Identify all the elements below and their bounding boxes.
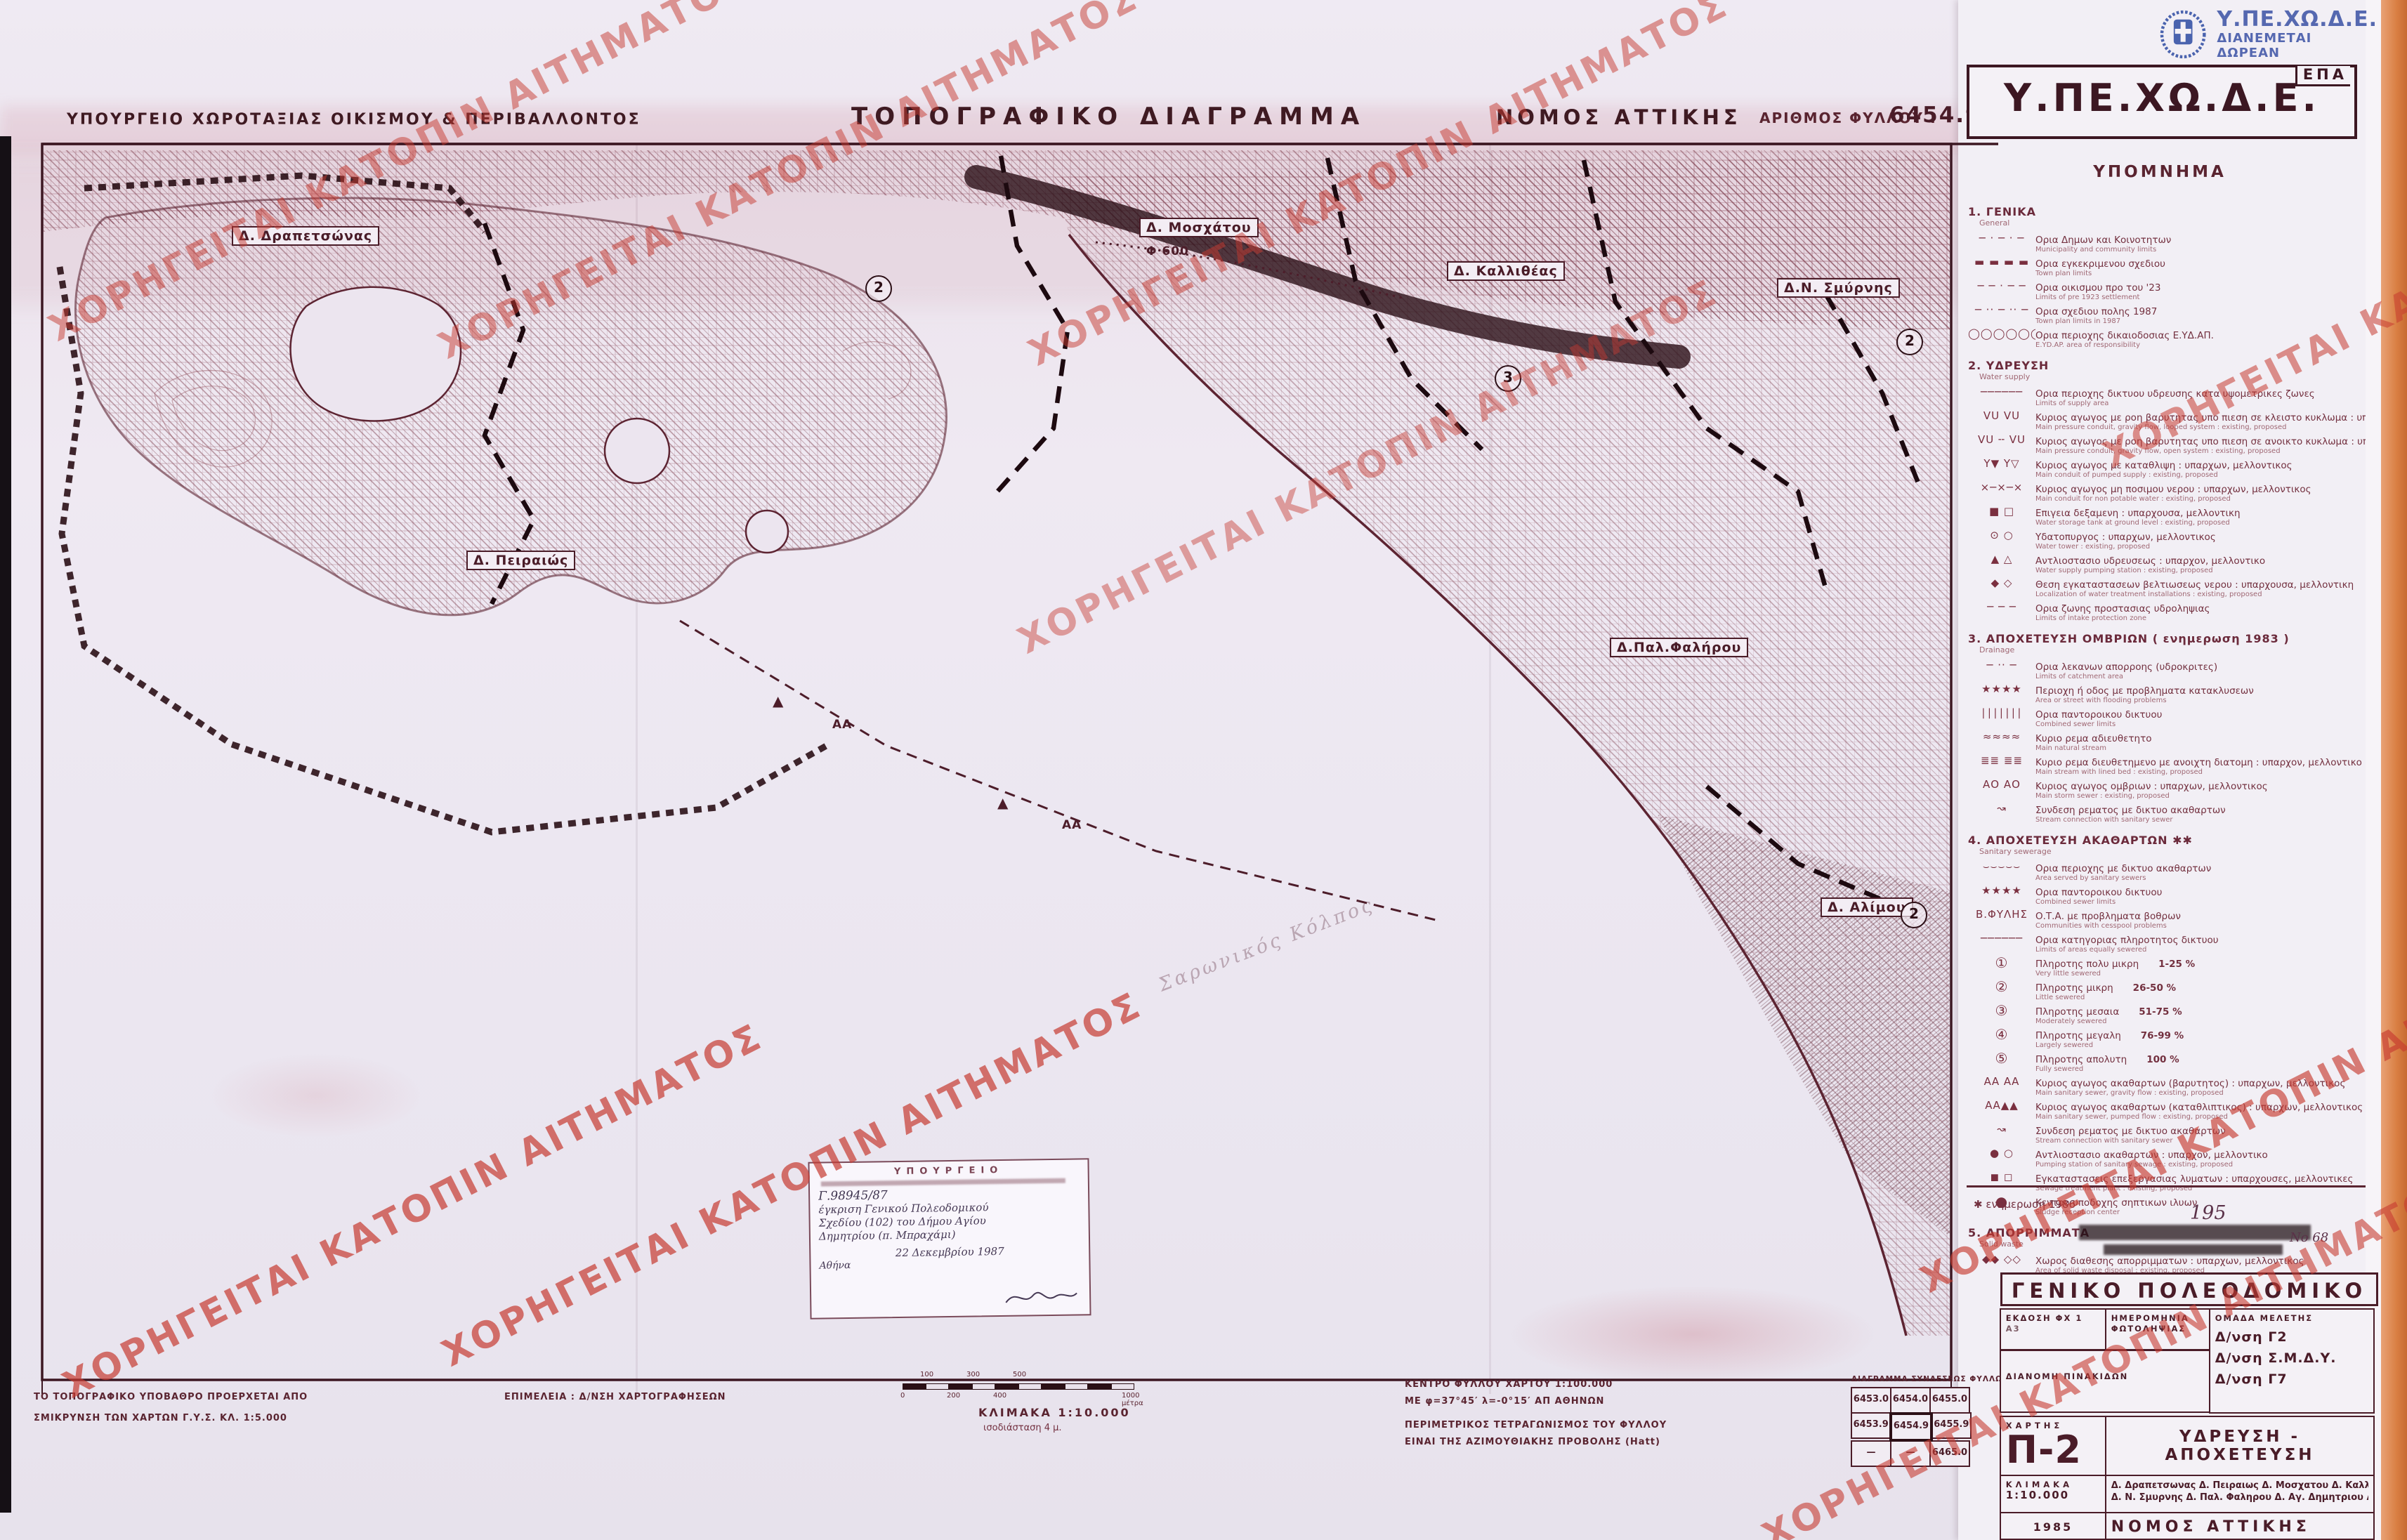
legend-item-text: Ορια οικισμου προ του '23Limits of pre 1… [2035,280,2366,301]
region-name: ΝΟΜΟΣ ΑΤΤΙΚΗΣ [2111,1517,2369,1538]
legend-symbol: ⌣⌣⌣⌣⌣ [1968,861,2035,873]
legend-item-text: Κυριος αγωγος μη ποσιμου νερου : υπαρχων… [2035,482,2366,503]
scale-bar-tick-label: 500 [1013,1371,1026,1378]
legend-item: ④Πληροτης μεγαλη76-99 %Largely sewered [1968,1028,2366,1049]
legend-symbol: ×─×─× [1968,482,2035,494]
sheet-index-title: ΔΙΑΓΡΑΜΜΑ ΣΥΝΔΕΣΕΩΣ ΦΥΛΛΩΝ [1851,1375,1971,1383]
legend-symbol: Β.ΦΥΛΗΣ [1968,909,2035,921]
scale-bar-segment [995,1383,1018,1390]
legend-item-english: Limits of pre 1923 settlement [2035,294,2366,301]
legend-item-english: Stream connection with sanitary sewer [2035,816,2366,824]
legend-item-line: Ορια Δημων και Κοινοτητων [2035,232,2366,246]
sewerage-zone-number: 2 [865,275,892,302]
legend-item-text: Συνδεση ρεματος με δικτυο ακαθαρτωνStrea… [2035,803,2366,824]
legend-symbol: ② [1968,980,2035,993]
municipalities-line: Δ. Δραπετσωνας Δ. Πειραιως Δ. Μοσχατου Δ… [2111,1480,2369,1492]
legend-item-text: Ορια σχεδιου πολης 1987Town plan limits … [2035,304,2366,325]
legend-symbol: ────── [1968,933,2035,945]
legend-item-greek: Ορια παντοροικου δικτυου [2035,709,2162,720]
legend-item-greek: Πληροτης μεγαλη [2035,1030,2121,1041]
legend-symbol: ────── [1968,386,2035,398]
legend-item-english: Little sewered [2035,994,2366,1001]
legend-section-subtitle: Drainage [1979,645,2366,654]
footer-credit: ΕΠΙΜΕΛΕΙΑ : Δ/ΝΣΗ ΧΑΡΤΟΓΡΑΦΗΣΕΩΝ [504,1392,726,1402]
legend-item-value: 51-75 % [2139,1006,2182,1018]
legend-item: ─ ·· ─Ορια λεκανων απορροης (υδροκριτες)… [1968,659,2366,680]
legend-item-greek: Ορια σχεδιου πολης 1987 [2035,306,2157,317]
legend-symbol: ∣∣∣∣∣∣∣ [1968,707,2035,719]
legend-item-greek: Ορια κατηγοριας πληροτητος δικτυου [2035,935,2219,946]
scale-value: 1:10.000 [2006,1490,2101,1501]
legend-item-greek: Συνδεση ρεματος με δικτυο ακαθαρτων [2035,805,2226,816]
legend-title: ΥΠΟΜΝΗΜΑ [1963,163,2356,181]
municipalities-cell: Δ. Δραπετσωνας Δ. Πειραιως Δ. Μοσχατου Δ… [2105,1475,2375,1514]
legend-item-line: Κυριος αγωγος με καταθλιψη : υπαρχων, με… [2035,458,2366,471]
legend-item-text: Ορια Δημων και ΚοινοτητωνMunicipality an… [2035,232,2366,254]
sheet-center-coords: ΜΕ φ=37°45′ λ=-0°15′ ΑΠ ΑΘΗΝΩΝ [1405,1396,1604,1407]
sewerage-zone-number: 2 [1901,902,1927,928]
legend-item-english: Town plan limits in 1987 [2035,317,2366,325]
legend-item-greek: Κυριος αγωγος με ροη βαρυτητας υπο πιεση… [2035,436,2366,447]
legend-item-line: Κυριος αγωγος με ροη βαρυτητας υπο πιεση… [2035,434,2366,447]
legend-section-title: 3. ΑΠΟΧΕΤΕΥΣΗ ΟΜΒΡΙΩΝ ( ενημερωση 1983 ) [1968,632,2366,645]
scale-bar: 10030050002004001000 μέτρα [903,1368,1134,1403]
legend-item-greek: Κυριο ρεμα διευθετημενο με ανοιχτη διατο… [2035,757,2362,768]
legend-item-english: Moderately sewered [2035,1018,2366,1025]
ink-stamp-smudge [2079,1225,2311,1240]
legend-symbol: ● ○ [1968,1147,2035,1159]
legend-item: ─ ·· ─ ·· ─Ορια σχεδιου πολης 1987Town p… [1968,304,2366,325]
legend-item-text: Περιοχη ή οδος με προβληματα κατακλυσεων… [2035,683,2366,704]
legend-section-header: 3. ΑΠΟΧΕΤΕΥΣΗ ΟΜΒΡΙΩΝ ( ενημερωση 1983 )… [1968,632,2366,654]
legend-divider [1967,1185,2366,1187]
scale-bar-tick-label: 400 [993,1392,1006,1400]
edition-sub: Α3 [2006,1324,2101,1334]
legend-item: ③Πληροτης μεσαια51-75 %Moderately sewere… [1968,1004,2366,1025]
edition-cell: ΕΚΔΟΣΗ ΦΧ 1 Α3 [2000,1308,2107,1350]
legend-item-line: Ορια κατηγοριας πληροτητος δικτυου [2035,933,2366,946]
mikrolimano-harbor [746,511,788,553]
legend-symbol: ▬ ▬ ▬ ▬ [1968,256,2035,268]
logo-free-distribution-note: ΔΙΑΝΕΜΕΤΑΙ ΔΩΡΕΑΝ [2217,31,2378,60]
legend-item-value: 100 % [2146,1054,2179,1065]
legend-item-greek: Κυριος αγωγος ομβριων : υπαρχων, μελλοντ… [2035,781,2268,792]
greek-coat-of-arms-icon [2156,6,2210,62]
legend-item-greek: Κυριος αγωγος με καταθλιψη : υπαρχων, με… [2035,460,2293,471]
map-code-table: ΧΑΡΤΗΣ Π-2 ΥΔΡΕΥΣΗ - ΑΠΟΧΕΤΕΥΣΗ ΚΛΙΜΑΚΑ … [2000,1417,2378,1540]
legend-item-text: Θεση εγκαταστασεων βελτιωσεως νερου : υπ… [2035,577,2366,598]
legend-item-text: Ορια κατηγοριας πληροτητος δικτυουLimits… [2035,933,2366,954]
legend-item-greek: Πληροτης απολυτη [2035,1054,2127,1065]
legend-item-english: Water storage tank at ground level : exi… [2035,519,2366,527]
legend-item-greek: Ορια εγκεκριμενου σχεδιου [2035,258,2165,270]
municipality-label: Δ. Πειραιώς [466,551,575,570]
legend-symbol: ⑤ [1968,1052,2035,1065]
scale-bar-segment [949,1383,972,1390]
scale-bar-end-label: 1000 μέτρα [1122,1392,1143,1407]
municipality-label: Δ.Ν. Σμύρνης [1777,278,1900,298]
legend-symbol: ─ ─ ─ [1968,601,2035,613]
legend-item-line: Πληροτης πολυ μικρη1-25 % [2035,956,2366,970]
agency-title-box: Υ.ΠΕ.ΧΩ.Δ.Ε. ΕΠΑ [1967,65,2357,139]
scale-bar-tick-label: 200 [947,1392,960,1400]
legend-item: ─ · ─ · ─Ορια Δημων και ΚοινοτητωνMunici… [1968,232,2366,254]
legend-item: ▲ △Αντλιοστασιο υδρευσεως : υπαρχον, μελ… [1968,553,2366,574]
legend-item: ★★★★Ορια παντοροικου δικτυουCombined sew… [1968,885,2366,906]
legend-item-text: Ορια παντοροικου δικτυουCombined sewer l… [2035,707,2366,728]
legend-item-english: Combined sewer limits [2035,898,2366,906]
sheet-index-cell: 6454.0 [1890,1387,1931,1414]
legend-item-line: Πληροτης μικρη26-50 % [2035,980,2366,994]
legend-symbol: ΑΑ ΑΑ [1968,1076,2035,1088]
map-conduit-mark: ΑΑ [1062,818,1082,832]
legend-item: ⊙ ○Υδατοπυργος : υπαρχων, μελλοντικοςWat… [1968,529,2366,551]
scale-bar-segment [926,1383,949,1390]
legend-item: ◆ ◇Θεση εγκαταστασεων βελτιωσεως νερου :… [1968,577,2366,598]
logo-agency-name: Υ.ΠΕ.ΧΩ.Δ.Ε. [2217,8,2378,31]
legend-item: ▬ ▬ ▬ ▬Ορια εγκεκριμενου σχεδιουTown pla… [1968,256,2366,277]
legend-item-english: Main stream with lined bed : existing, p… [2035,768,2366,776]
legend-item-text: Πληροτης μικρη26-50 %Little sewered [2035,980,2366,1001]
legend-item-text: Ο.Τ.Α. με προβληματα βοθρωνCommunities w… [2035,909,2366,930]
sheet-index-cell: 6453.0 [1851,1387,1891,1414]
legend-item-english: Area or street with flooding problems [2035,697,2366,704]
legend-item-text: Κυριος αγωγος με ροη βαρυτητας υπο πιεση… [2035,434,2366,455]
scale-bar-segment [1088,1383,1111,1390]
approval-stamp: ΥΠΟΥΡΓΕΙΟ Γ.98945/87 έγκριση Γενικού Πολ… [808,1158,1091,1319]
zea-harbor [605,419,669,483]
sheet-center-note: ΚΕΝΤΡΟ ΦΥΛΛΟΥ ΧΑΡΤΟΥ 1:100.000 [1405,1379,1613,1390]
legend-item-line: Αντλιοστασιο υδρευσεως : υπαρχον, μελλον… [2035,553,2366,567]
legend-item: Β.ΦΥΛΗΣΟ.Τ.Α. με προβληματα βοθρωνCommun… [1968,909,2366,930]
legend-symbol: ≣≣ ≣≣ [1968,755,2035,767]
legend-item-greek: Υδατοπυργος : υπαρχων, μελλοντικος [2035,532,2216,543]
ink-stamp-smudge [2104,1244,2283,1255]
legend-item-text: Πληροτης μεγαλη76-99 %Largely sewered [2035,1028,2366,1049]
legend-item-greek: Ο.Τ.Α. με προβληματα βοθρων [2035,911,2181,922]
legend-symbol: ★★★★ [1968,885,2035,897]
legend-symbol: ↝ [1968,803,2035,815]
legend-item-value: 1-25 % [2158,959,2195,970]
legend-item-line: Ορια ζωνης προστασιας υδροληψιας [2035,601,2366,614]
legend-item: Y▼ Y▽Κυριος αγωγος με καταθλιψη : υπαρχω… [1968,458,2366,479]
legend-item-greek: Πληροτης μικρη [2035,982,2113,994]
legend-item-text: Αντλιοστασιο υδρευσεως : υπαρχον, μελλον… [2035,553,2366,574]
sewerage-zone-number: 2 [1896,329,1923,355]
legend-item-text: Ορια περιοχης με δικτυο ακαθαρτωνArea se… [2035,861,2366,882]
legend-symbol: ④ [1968,1028,2035,1041]
projection-note: ΕΙΝΑΙ ΤΗΣ ΑΖΙΜΟΥΘΙΑΚΗΣ ΠΡΟΒΟΛΗΣ (Hatt) [1405,1437,1660,1447]
legend-item-greek: Ορια οικισμου προ του '23 [2035,282,2160,294]
svg-text:▲: ▲ [773,692,784,709]
municipality-label: Δ. Αλίμου [1821,897,1913,917]
legend-item: ≈≈≈≈Κυριο ρεμα αδιευθετητοMain natural s… [1968,731,2366,752]
legend-section-title: 1. ΓΕΝΙΚΑ [1968,205,2366,218]
legend-symbol: ◆ ◇ [1968,577,2035,589]
legend-item-line: Υδατοπυργος : υπαρχων, μελλοντικος [2035,529,2366,543]
legend-item-english: Limits of intake protection zone [2035,614,2366,622]
scale-bar-segment [903,1383,926,1390]
sewer-outfall-line: ▲ ▲ [680,621,1441,921]
legend-symbol: ■ □ [1968,506,2035,518]
scale-bar-tick-label: 300 [966,1371,980,1378]
legend-item-english: Communities with cesspool problems [2035,922,2366,930]
legend-item: ─ ─ ─Ορια ζωνης προστασιας υδροληψιαςLim… [1968,601,2366,622]
legend-item-line: Πληροτης μεγαλη76-99 % [2035,1028,2366,1041]
legend-item-line: Κυριο ρεμα διευθετημενο με ανοιχτη διατο… [2035,755,2366,768]
map-code: Π-2 [2006,1431,2101,1469]
signature-scribble [1002,1284,1080,1310]
legend-symbol: ─ ·· ─ ·· ─ [1968,304,2035,316]
subject-cell: ΥΔΡΕΥΣΗ - ΑΠΟΧΕΤΕΥΣΗ [2105,1416,2375,1476]
legend-item-english: Combined sewer limits [2035,720,2366,728]
handwritten-number: 195 [2190,1202,2226,1224]
legend-item: ──────Ορια κατηγοριας πληροτητος δικτυου… [1968,933,2366,954]
legend-item-greek: Πληροτης πολυ μικρη [2035,959,2139,970]
scale-bar-tick-label: 100 [920,1371,933,1378]
scale-bar-segment [1018,1383,1042,1390]
legend-symbol: ③ [1968,1004,2035,1017]
study-team-line: Δ/νση Σ.Μ.Δ.Υ. [2215,1350,2369,1366]
legend-item-line: Ορια παντοροικου δικτυου [2035,885,2366,898]
legend-item-line: Ορια λεκανων απορροης (υδροκριτες) [2035,659,2366,673]
legend-symbol: ① [1968,956,2035,969]
legend-symbol: ◯◯◯◯◯◯ [1968,328,2035,340]
legend-item-english: Water supply pumping station : existing,… [2035,567,2366,574]
legend-item-greek: Θεση εγκαταστασεων βελτιωσεως νερου : υπ… [2035,579,2354,591]
legend-symbol: VU VU [1968,410,2035,422]
legend-symbol: Y▼ Y▽ [1968,458,2035,470]
legend-item-line: Επιγεια δεξαμενη : υπαρχουσα, μελλοντικη [2035,506,2366,519]
study-team-line: Δ/νση Γ2 [2215,1329,2369,1345]
legend-item-english: Main conduit of pumped supply : existing… [2035,471,2366,479]
legend-section-title: 4. ΑΠΟΧΕΤΕΥΣΗ ΑΚΑΘΑΡΤΩΝ ✱✱ [1968,834,2366,847]
legend-item-english: Town plan limits [2035,270,2366,277]
legend-item: ①Πληροτης πολυ μικρη1-25 %Very little se… [1968,956,2366,978]
municipality-label: Δ. Καλλιθέας [1447,261,1565,281]
legend-item-line: Πληροτης μεσαια51-75 % [2035,1004,2366,1018]
projection-note: ΠΕΡΙΜΕΤΡΙΚΟΣ ΤΕΤΡΑΓΩΝΙΣΜΟΣ ΤΟΥ ΦΥΛΛΟΥ [1405,1420,1667,1430]
legend-item-line: Θεση εγκαταστασεων βελτιωσεως νερου : υπ… [2035,577,2366,591]
study-team-line: Δ/νση Γ7 [2215,1371,2369,1387]
legend-item: ★★★★Περιοχη ή οδος με προβληματα κατακλυ… [1968,683,2366,704]
legend-section-subtitle: Sanitary sewerage [1979,847,2366,856]
legend-item-line: Κυριος αγωγος μη ποσιμου νερου : υπαρχων… [2035,482,2366,495]
legend-item-text: Πληροτης πολυ μικρη1-25 %Very little sew… [2035,956,2366,978]
ministry-title: ΥΠΟΥΡΓΕΙΟ ΧΩΡΟΤΑΞΙΑΣ ΟΙΚΙΣΜΟΥ & ΠΕΡΙΒΑΛΛ… [67,111,641,129]
legend-item-greek: Κυριο ρεμα αδιευθετητο [2035,733,2151,744]
legend-item-line: Ορια παντοροικου δικτυου [2035,707,2366,720]
stamp-body-line: Δημητρίου (π. Μπραχάμι) [819,1226,1080,1243]
legend-symbol: ▲ △ [1968,553,2035,565]
legend-item-text: Υδατοπυργος : υπαρχων, μελλοντικοςWater … [2035,529,2366,551]
legend-item-value: 76-99 % [2141,1030,2184,1041]
equidistance-note: ισοδιάσταση 4 μ. [983,1423,1062,1433]
legend-item-english: Water tower : existing, proposed [2035,543,2366,551]
legend-symbol: ─ ─ · ─ ─ [1968,280,2035,292]
sheet-index-cell: 6453.9 [1851,1412,1891,1439]
legend-item-english: Localization of water treatment installa… [2035,591,2366,598]
scanned-map-sheet: ▲ ▲ ΥΠΟΥΡΓΕΙΟ ΧΩΡΟΤΑΞΙΑΣ ΟΙΚΙΣΜΟΥ & ΠΕΡΙ… [0,0,2407,1540]
legend-symbol: ◼ ◻ [1968,1171,2035,1183]
legend-item-english: Area served by sanitary sewers [2035,874,2366,882]
legend-symbol: ⊙ ○ [1968,529,2035,541]
edition-label: ΕΚΔΟΣΗ ΦΧ 1 [2006,1313,2101,1324]
legend-item-greek: Αντλιοστασιο υδρευσεως : υπαρχον, μελλον… [2035,555,2265,567]
legend-item-value: 26-50 % [2133,982,2176,994]
legend-item-text: Ορια εγκεκριμενου σχεδιουTown plan limit… [2035,256,2366,277]
scale-bar-segment [1111,1383,1134,1390]
legend-item-line: Περιοχη ή οδος με προβληματα κατακλυσεων [2035,683,2366,697]
legend-item: ■ □Επιγεια δεξαμενη : υπαρχουσα, μελλοντ… [1968,506,2366,527]
year-cell: 1985 [2000,1512,2107,1540]
municipality-label: Δ.Παλ.Φαλήρου [1610,638,1748,657]
sheet-index-row: 6453.06454.06455.0 [1851,1388,1971,1413]
legend-item-english: Largely sewered [2035,1041,2366,1049]
stamp-illegible-line [821,1178,1065,1187]
legend-item-line: Ορια εγκεκριμενου σχεδιου [2035,256,2366,270]
legend-item-english: Municipality and community limits [2035,246,2366,254]
legend-symbol: VU ╌ VU [1968,434,2035,446]
legend-item-line: Ο.Τ.Α. με προβληματα βοθρων [2035,909,2366,922]
legend-item-greek: Πληροτης μεσαια [2035,1006,2119,1018]
piraeus-main-harbor [291,287,461,421]
legend-item-english: Limits of areas equally sewered [2035,946,2366,954]
legend-item-text: Ορια λεκανων απορροης (υδροκριτες)Limits… [2035,659,2366,680]
legend-item-text: Ορια παντοροικου δικτυουCombined sewer l… [2035,885,2366,906]
map-subject: ΥΔΡΕΥΣΗ - ΑΠΟΧΕΤΕΥΣΗ [2111,1428,2369,1464]
legend-item-english: Main storm sewer : existing, proposed [2035,792,2366,800]
legend-item: ↝Συνδεση ρεματος με δικτυο ακαθαρτωνStre… [1968,803,2366,824]
legend-symbol: ─ · ─ · ─ [1968,232,2035,244]
legend-item-text: Κυριος αγωγος ομβριων : υπαρχων, μελλοντ… [2035,779,2366,800]
legend-item-greek: Επιγεια δεξαμενη : υπαρχουσα, μελλοντικη [2035,508,2241,519]
map-conduit-mark: ΑΑ [832,718,852,732]
agency-logo: Υ.ΠΕ.ΧΩ.Δ.Ε. ΔΙΑΝΕΜΕΤΑΙ ΔΩΡΕΑΝ [2156,4,2378,65]
legend-item-text: Επιγεια δεξαμενη : υπαρχουσα, μελλοντικη… [2035,506,2366,527]
sheet-index-cell: 6455.0 [1929,1387,1970,1414]
legend-item-line: Ορια οικισμου προ του '23 [2035,280,2366,294]
legend-symbol: ★★★★ [1968,683,2035,695]
legend-symbol: ≈≈≈≈ [1968,731,2035,743]
legend-item-line: Κυριος αγωγος ομβριων : υπαρχων, μελλοντ… [2035,779,2366,792]
legend-section-header: 4. ΑΠΟΧΕΤΕΥΣΗ ΑΚΑΘΑΡΤΩΝ ✱✱Sanitary sewer… [1968,834,2366,856]
legend-item-greek: Ορια λεκανων απορροης (υδροκριτες) [2035,662,2217,673]
legend-item: ─ ─ · ─ ─Ορια οικισμου προ του '23Limits… [1968,280,2366,301]
scale-bar-segment [1042,1383,1065,1390]
scale-bar-segment [1065,1383,1088,1390]
legend-symbol: ΑΑ▲▲ [1968,1100,2035,1112]
svg-text:▲: ▲ [997,794,1009,811]
legend-item: ②Πληροτης μικρη26-50 %Little sewered [1968,980,2366,1001]
legend-item: ∣∣∣∣∣∣∣Ορια παντοροικου δικτυουCombined … [1968,707,2366,728]
legend-item-greek: Ορια Δημων και Κοινοτητων [2035,235,2171,246]
legend-item: ≣≣ ≣≣Κυριο ρεμα διευθετημενο με ανοιχτη … [1968,755,2366,776]
legend-item-text: Κυριος αγωγος με καταθλιψη : υπαρχων, με… [2035,458,2366,479]
scale-caption: ΚΛΙΜΑΚΑ 1:10.000 [978,1406,1131,1419]
legend-item-line: Ορια σχεδιου πολης 1987 [2035,304,2366,317]
legend-item-text: Ορια ζωνης προστασιας υδροληψιαςLimits o… [2035,601,2366,622]
legend-item: ×─×─×Κυριος αγωγος μη ποσιμου νερου : υπ… [1968,482,2366,503]
region-cell: ΝΟΜΟΣ ΑΤΤΙΚΗΣ [2105,1512,2375,1540]
legend-item-text: Πληροτης μεσαια51-75 %Moderately sewered [2035,1004,2366,1025]
footer-source-line: ΣΜΙΚΡΥΝΣΗ ΤΩΝ ΧΑΡΤΩΝ Γ.Υ.Σ. ΚΛ. 1:5.000 [34,1413,287,1423]
scale-bar-tick-label: 0 [900,1392,905,1400]
legend-section-header: 1. ΓΕΝΙΚΑGeneral [1968,205,2366,228]
legend-item-english: Limits of catchment area [2035,673,2366,680]
scale-cell: ΚΛΙΜΑΚΑ 1:10.000 [2000,1475,2107,1514]
legend-symbol: ↝ [1968,1124,2035,1136]
legend-item-english: Main natural stream [2035,744,2366,752]
agency-epa-tag: ΕΠΑ [2295,66,2350,86]
legend-item-english: Very little sewered [2035,970,2366,978]
municipalities-line: Δ. Ν. Σμυρνης Δ. Παλ. Φαληρου Δ. Αγ. Δημ… [2111,1492,2369,1503]
legend-symbol: ΑΟ ΑΟ [1968,779,2035,791]
legend-item-line: Κυριο ρεμα αδιευθετητο [2035,731,2366,744]
legend-section-subtitle: General [1979,218,2366,228]
legend-item: ⌣⌣⌣⌣⌣Ορια περιοχης με δικτυο ακαθαρτωνAr… [1968,861,2366,882]
legend-item-greek: Περιοχη ή οδος με προβληματα κατακλυσεων [2035,685,2254,697]
legend-item: ΑΟ ΑΟΚυριος αγωγος ομβριων : υπαρχων, με… [1968,779,2366,800]
legend-item-text: Κυριο ρεμα αδιευθετητοMain natural strea… [2035,731,2366,752]
legend-item-greek: Ορια περιοχης δικαιοδοσιας Ε.ΥΔ.ΑΠ. [2035,330,2214,341]
legend-item-greek: Ορια παντοροικου δικτυου [2035,887,2162,898]
legend-item-greek: Ορια περιοχης με δικτυο ακαθαρτων [2035,863,2211,874]
legend-item-greek: Κυριος αγωγος μη ποσιμου νερου : υπαρχων… [2035,484,2311,495]
legend-item-english: Main pressure conduit, gravity flow, ope… [2035,447,2366,455]
legend-item-greek: Ορια ζωνης προστασιας υδροληψιας [2035,603,2210,614]
scale-bar-segment [972,1383,995,1390]
legend-item-line: Συνδεση ρεματος με δικτυο ακαθαρτων [2035,803,2366,816]
legend-item-english: Main conduit for non potable water : exi… [2035,495,2366,503]
legend-symbol: ─ ·· ─ [1968,659,2035,671]
legend-item-text: Κυριο ρεμα διευθετημενο με ανοιχτη διατο… [2035,755,2366,776]
legend-item-line: Ορια περιοχης με δικτυο ακαθαρτων [2035,861,2366,874]
